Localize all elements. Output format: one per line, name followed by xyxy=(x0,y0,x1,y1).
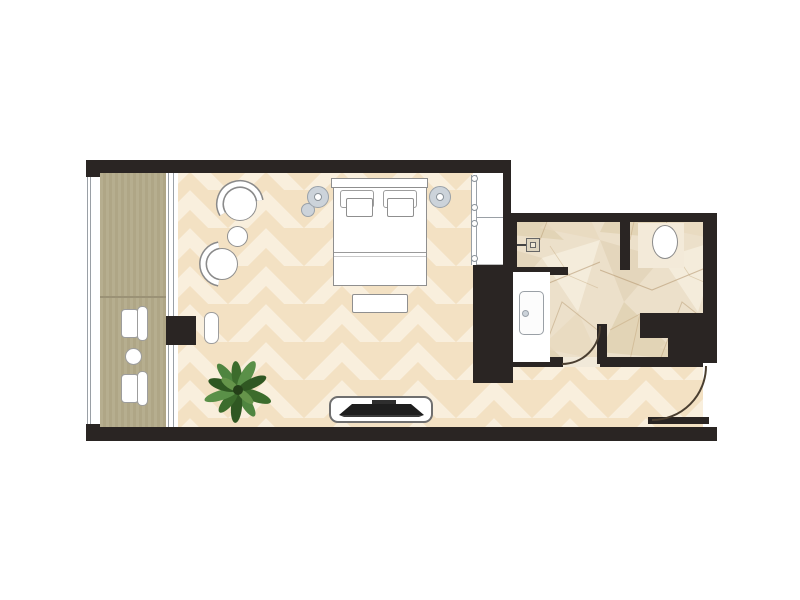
balcony-chair-back xyxy=(137,306,148,341)
wall-toilet-partition xyxy=(620,222,630,270)
pillow-front xyxy=(346,198,373,217)
window-stool xyxy=(204,312,219,344)
entry-door-leaf xyxy=(648,417,709,424)
pillow-front xyxy=(387,198,414,217)
wardrobe-divider xyxy=(477,217,503,218)
wall-bedroom-bathroom xyxy=(473,265,513,383)
wardrobe-pivot xyxy=(471,255,478,262)
tv xyxy=(329,396,433,423)
balcony-railing xyxy=(87,173,91,427)
bathroom-door-threshold xyxy=(563,357,600,367)
wall-top xyxy=(88,160,511,173)
lamp-center xyxy=(314,193,322,201)
round-side-table xyxy=(227,226,248,247)
wardrobe-pivot xyxy=(471,175,478,182)
wardrobe-pivot xyxy=(471,204,478,211)
toilet xyxy=(652,225,678,259)
armchair xyxy=(223,187,257,221)
potted-plant xyxy=(200,352,276,428)
wall-bathroom-top xyxy=(503,213,717,222)
wall-bottom xyxy=(88,427,717,441)
wall-window-pier xyxy=(166,316,196,345)
wall-bathroom-corner-strip xyxy=(640,313,668,338)
wardrobe xyxy=(477,175,503,265)
bathroom-door-leaf xyxy=(597,324,607,364)
deck-seam xyxy=(100,296,168,298)
sliding-glass-door xyxy=(166,173,178,427)
balcony-chair-back xyxy=(137,371,148,406)
shower-drain xyxy=(526,238,540,252)
armchair xyxy=(206,248,238,280)
wall-bathroom-bottom-right xyxy=(600,357,703,367)
lamp-center xyxy=(436,193,444,201)
balcony-side-table xyxy=(125,348,142,365)
floor-plan xyxy=(0,0,800,600)
wall-bathroom-corner-block xyxy=(668,313,703,363)
sink-faucet xyxy=(522,310,529,317)
wall-right xyxy=(703,222,717,363)
wardrobe-pivot xyxy=(471,220,478,227)
foot-bench xyxy=(352,294,408,313)
